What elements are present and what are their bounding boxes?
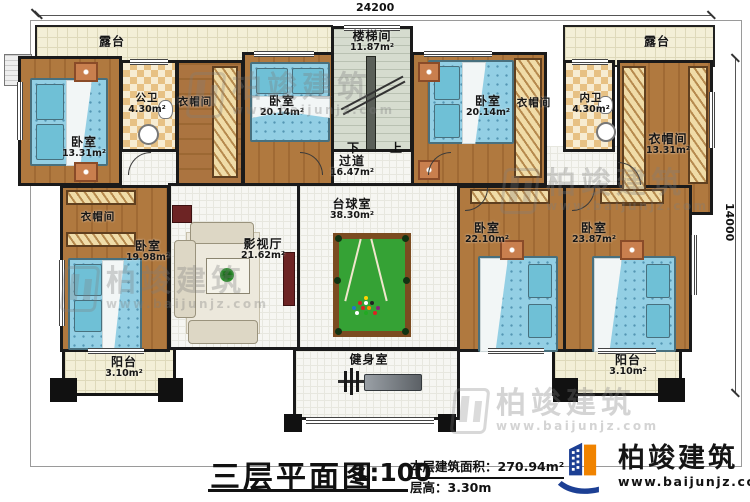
window (572, 59, 608, 65)
room-label-bedroom-2: 卧室 20.14m² (260, 95, 304, 119)
nightstand-icon (74, 62, 98, 82)
room-label-balcony-left: 阳台 3.10m² (105, 356, 143, 380)
dimension-line-top (38, 15, 712, 16)
floor-height-label: 层高： (410, 480, 448, 495)
room-label-bedroom-1: 卧室 13.31m² (62, 136, 106, 160)
nightstand-icon (418, 62, 440, 82)
sink-icon (138, 124, 159, 145)
window (130, 59, 168, 65)
wardrobe-icon (212, 66, 238, 178)
barbell-plate-icon (350, 368, 353, 395)
room-label-cloak-mid: 衣帽间 (517, 98, 552, 110)
room-label-bath-inner: 内卫 4.30m² (572, 93, 610, 115)
sink-icon (596, 122, 616, 142)
dimension-top-value: 24200 (356, 1, 394, 14)
column (658, 378, 685, 402)
brand-logo-icon (556, 438, 612, 496)
bed-icon (478, 256, 558, 352)
room-label-bedroom-3: 卧室 20.14m² (466, 95, 510, 119)
floor-area-label: 本层建筑面积： (410, 459, 498, 474)
room-label-bath-public: 公卫 4.30m² (128, 93, 166, 115)
window (488, 348, 544, 354)
pool-balls-icon (364, 296, 368, 300)
floor-area-value: 270.94m² (498, 459, 565, 474)
window (691, 235, 697, 295)
room-label-cloak-right: 衣帽间 13.31m² (646, 133, 690, 157)
sofa-icon (188, 320, 258, 344)
room-label-terrace-left: 露台 (99, 35, 125, 48)
room-label-corridor: 过道 16.47m² (330, 155, 374, 179)
window (709, 92, 715, 148)
column (284, 414, 302, 432)
nightstand-icon (74, 162, 98, 182)
brand-website: www.baijunjz.com (618, 474, 750, 489)
room-label-gym: 健身室 (349, 353, 388, 366)
title-underline (208, 489, 408, 492)
room-label-cloak-left: 衣帽间 (81, 212, 116, 224)
window (88, 348, 144, 354)
wardrobe-icon (688, 66, 708, 184)
window (254, 51, 314, 57)
wardrobe-icon (66, 190, 136, 205)
nightstand-icon (620, 240, 644, 260)
stair-rail (366, 56, 376, 150)
floor-plan-canvas: 24200 14000 (0, 0, 750, 502)
barbell-plate-icon (356, 371, 359, 392)
bed-icon (68, 258, 142, 350)
column (438, 414, 456, 432)
plant-icon (220, 268, 234, 282)
room-label-balcony-right: 阳台 3.10m² (609, 354, 647, 378)
window (17, 82, 23, 140)
column (50, 378, 77, 402)
window (59, 260, 65, 326)
room-label-cloak-top: 衣帽间 (178, 97, 213, 109)
stair-up-label: 上 (390, 139, 402, 156)
brand-logo: 柏竣建筑 www.baijunjz.com (556, 438, 750, 496)
room-label-bedroom-4: 卧室 22.10m² (465, 222, 509, 246)
room-label-terrace-right: 露台 (644, 35, 670, 48)
column (158, 378, 183, 402)
floor-height-row: 层高：3.30m (410, 477, 491, 496)
floor-area-row: 本层建筑面积：270.94m² (410, 456, 564, 479)
wardrobe-icon (600, 189, 664, 204)
room-label-billiard: 台球室 38.30m² (330, 198, 374, 222)
room-label-bedroom-left: 卧室 19.98m² (126, 240, 170, 264)
column (553, 378, 578, 402)
sofa-icon (174, 240, 196, 318)
wardrobe-icon (514, 58, 542, 178)
room-label-theater: 影视厅 21.62m² (241, 238, 285, 262)
barbell-plate-icon (344, 371, 347, 392)
bed-icon (592, 256, 676, 352)
brand-name: 柏竣建筑 (618, 445, 750, 473)
floor-height-value: 3.30m (448, 480, 492, 495)
dimension-right-value: 14000 (723, 203, 736, 241)
room-label-bedroom-5: 卧室 23.87m² (572, 222, 616, 246)
window (424, 51, 492, 57)
room-label-stairwell: 楼梯间 11.87m² (350, 30, 394, 54)
wardrobe-icon (622, 66, 646, 206)
tv-cabinet-icon (172, 205, 192, 223)
bench-pad-icon (364, 374, 422, 391)
window (306, 417, 434, 424)
